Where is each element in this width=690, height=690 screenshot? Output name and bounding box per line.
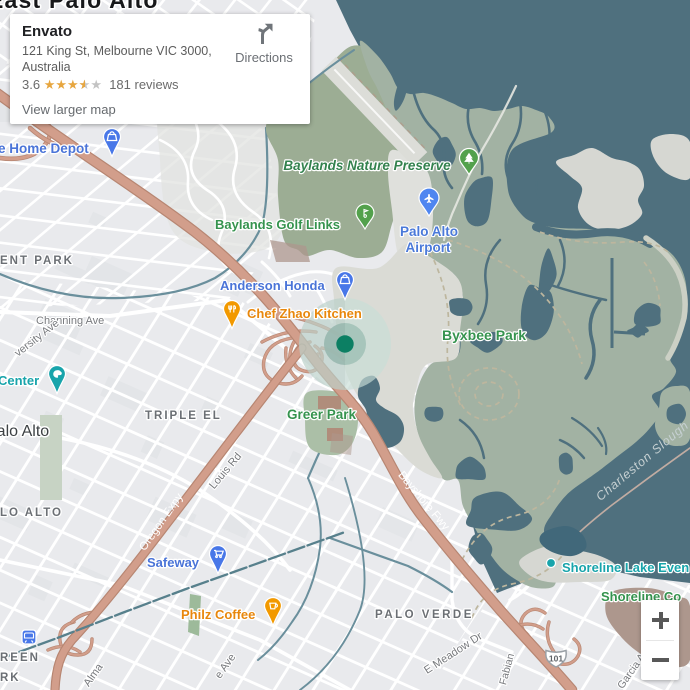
svg-text:e Home Depot: e Home Depot [0,141,89,156]
svg-text:Airport: Airport [406,240,452,255]
svg-text:LO ALTO: LO ALTO [0,507,63,519]
svg-text:ENT PARK: ENT PARK [0,255,74,267]
svg-text:Palo Alto: Palo Alto [0,423,49,440]
svg-text:Palo Alto: Palo Alto [400,224,458,239]
svg-text:Center: Center [0,373,39,388]
svg-text:East Palo Alto: East Palo Alto [0,0,159,13]
svg-text:Byxbee Park: Byxbee Park [442,327,526,343]
svg-text:RK: RK [0,672,21,684]
svg-text:TRIPLE EL: TRIPLE EL [145,410,222,422]
svg-text:Baylands Nature Preserve: Baylands Nature Preserve [283,158,451,173]
svg-text:PALO VERDE: PALO VERDE [375,609,474,621]
svg-text:Safeway: Safeway [147,555,200,570]
svg-text:Anderson Honda: Anderson Honda [220,278,325,293]
svg-text:Greer Park: Greer Park [287,407,357,422]
svg-text:REEN: REEN [0,652,40,664]
svg-text:101: 101 [549,654,563,664]
svg-text:Philz Coffee: Philz Coffee [181,607,255,622]
svg-text:Shoreline Lake Even: Shoreline Lake Even [562,560,689,575]
svg-text:Chef Zhao Kitchen: Chef Zhao Kitchen [247,306,362,321]
svg-text:Baylands Golf Links: Baylands Golf Links [215,217,340,232]
